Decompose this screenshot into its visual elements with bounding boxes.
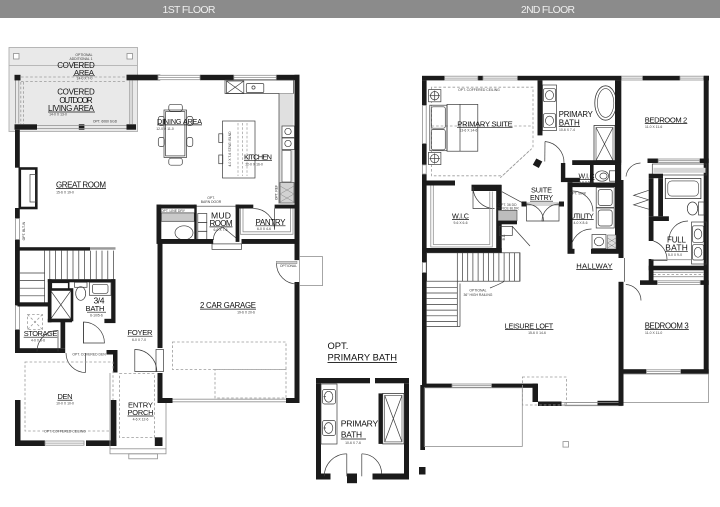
svg-text:36" HIGH RAILING: 36" HIGH RAILING xyxy=(464,293,493,297)
svg-text:W.I.C: W.I.C xyxy=(452,211,469,220)
svg-text:5-0 X 9-0: 5-0 X 9-0 xyxy=(668,253,682,257)
svg-text:9-6 X 6-6: 9-6 X 6-6 xyxy=(454,221,468,225)
svg-text:BATH: BATH xyxy=(341,430,362,440)
svg-text:BEDROOM 3: BEDROOM 3 xyxy=(645,322,689,331)
svg-text:STORAGE: STORAGE xyxy=(24,329,58,338)
svg-text:PRIMARY BATH: PRIMARY BATH xyxy=(328,351,398,362)
svg-text:19-6 X 20-6: 19-6 X 20-6 xyxy=(237,311,255,315)
svg-text:OFFICE BLDR: OFFICE BLDR xyxy=(496,206,519,210)
svg-text:6-0 X 7-6: 6-0 X 7-6 xyxy=(214,228,228,232)
svg-text:OPT. COFFERED CEILING: OPT. COFFERED CEILING xyxy=(44,429,86,433)
svg-text:B.D.: B.D. xyxy=(502,234,506,241)
svg-text:BATH: BATH xyxy=(86,304,105,313)
svg-text:OPTIONAL: OPTIONAL xyxy=(469,288,486,292)
svg-text:11-0 X 11-6: 11-0 X 11-6 xyxy=(645,125,662,129)
svg-text:KITCHEN: KITCHEN xyxy=(244,153,272,162)
svg-text:LEISURE LOFT: LEISURE LOFT xyxy=(505,322,554,331)
svg-text:PRIMARY: PRIMARY xyxy=(341,418,379,428)
svg-text:1ST FLOOR: 1ST FLOOR xyxy=(163,4,216,16)
svg-text:OPT. REF: OPT. REF xyxy=(275,185,279,200)
svg-text:4-6 X 12-6: 4-6 X 12-6 xyxy=(133,418,149,422)
svg-text:5-0 X 5-0: 5-0 X 5-0 xyxy=(579,181,593,185)
svg-text:BATH: BATH xyxy=(665,243,688,253)
svg-text:PRIMARY SUITE: PRIMARY SUITE xyxy=(457,120,512,129)
svg-text:OPT.: OPT. xyxy=(328,340,349,351)
svg-text:OPT. BLT-IN: OPT. BLT-IN xyxy=(22,221,26,240)
svg-text:14-0 X 13-0: 14-0 X 13-0 xyxy=(49,113,67,117)
svg-text:GREAT ROOM: GREAT ROOM xyxy=(56,180,106,189)
svg-text:10-6 X 7-4: 10-6 X 7-4 xyxy=(559,128,575,132)
svg-text:6-10/5-6: 6-10/5-6 xyxy=(90,314,103,318)
svg-text:4-0 X 8-6: 4-0 X 8-6 xyxy=(574,221,588,225)
svg-text:OPT. LINE DRY: OPT. LINE DRY xyxy=(161,209,186,213)
svg-text:10-6 X 7-6: 10-6 X 7-6 xyxy=(345,441,361,445)
svg-text:13-6 X 14-6: 13-6 X 14-6 xyxy=(460,129,478,133)
svg-text:OPT. COFFERED CEILING: OPT. COFFERED CEILING xyxy=(458,88,500,92)
svg-text:2ND FLOOR: 2ND FLOOR xyxy=(521,5,575,16)
svg-text:15-6 X 19-0: 15-6 X 19-0 xyxy=(56,190,74,194)
svg-text:BARN DOOR: BARN DOOR xyxy=(201,200,222,204)
svg-text:11-0 X 11-0: 11-0 X 11-0 xyxy=(645,331,662,335)
svg-text:OPT. COVERED DEN: OPT. COVERED DEN xyxy=(72,352,106,356)
svg-text:6-0 X 7-0: 6-0 X 7-0 xyxy=(132,338,146,342)
svg-text:FOYER: FOYER xyxy=(128,328,154,337)
svg-text:12-0 X 11-0: 12-0 X 11-0 xyxy=(156,127,174,131)
svg-text:OPT. SINK: OPT. SINK xyxy=(570,192,587,196)
svg-text:4-0 X 8-6: 4-0 X 8-6 xyxy=(31,339,45,343)
svg-text:6-0 X 4-6: 6-0 X 4-6 xyxy=(257,227,271,231)
svg-text:OPT. 6060 SGD: OPT. 6060 SGD xyxy=(93,120,118,124)
svg-text:BEDROOM 2: BEDROOM 2 xyxy=(645,116,688,125)
svg-text:2 CAR GARAGE: 2 CAR GARAGE xyxy=(200,301,256,310)
svg-text:15-6 X 14-6: 15-6 X 14-6 xyxy=(528,331,546,335)
svg-text:10-0 X 10-0: 10-0 X 10-0 xyxy=(56,402,74,406)
svg-text:LIVING AREA: LIVING AREA xyxy=(48,104,95,113)
svg-text:OPTIONAL: OPTIONAL xyxy=(280,264,297,268)
svg-text:4-0 X 7-6 STNG ISLND: 4-0 X 7-6 STNG ISLND xyxy=(228,131,232,167)
svg-text:12-0 X 16-0: 12-0 X 16-0 xyxy=(245,163,263,167)
